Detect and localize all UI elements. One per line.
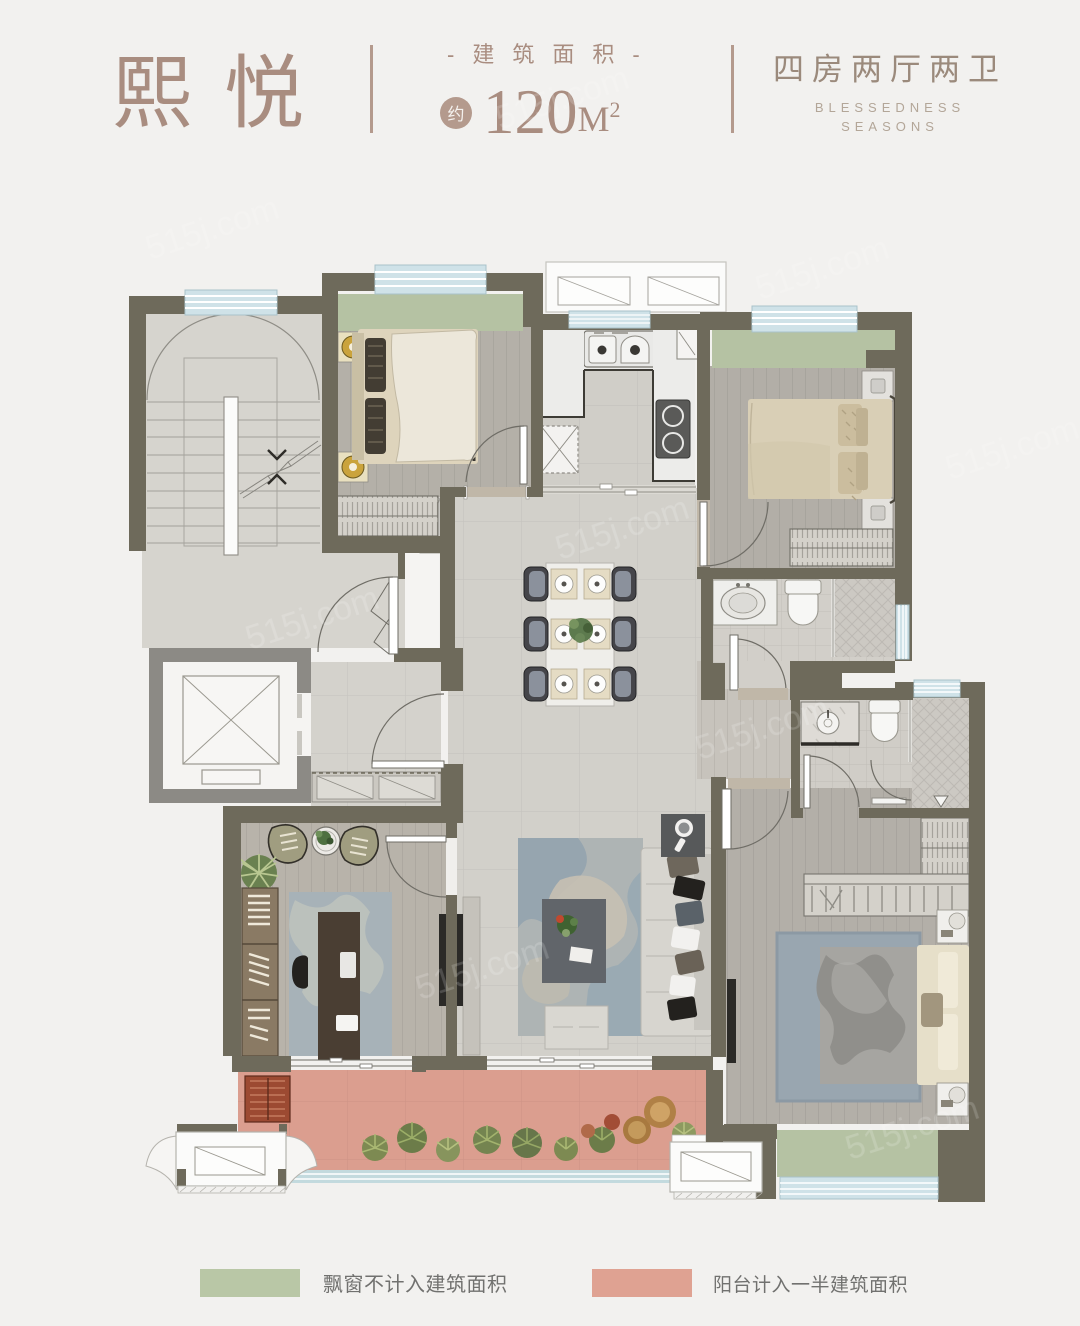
svg-text:阳台计入一半建筑面积: 阳台计入一半建筑面积 <box>713 1274 908 1296</box>
svg-text:四房两厅两卫: 四房两厅两卫 <box>773 52 1007 87</box>
svg-text:SEASONS: SEASONS <box>841 119 939 134</box>
svg-text:约: 约 <box>448 105 465 124</box>
svg-text:-建筑面积-: -建筑面积- <box>447 42 658 67</box>
svg-text:飘窗不计入建筑面积: 飘窗不计入建筑面积 <box>323 1273 508 1296</box>
svg-text:BLESSEDNESS: BLESSEDNESS <box>815 100 965 115</box>
svg-text:熙悦: 熙悦 <box>112 49 336 138</box>
